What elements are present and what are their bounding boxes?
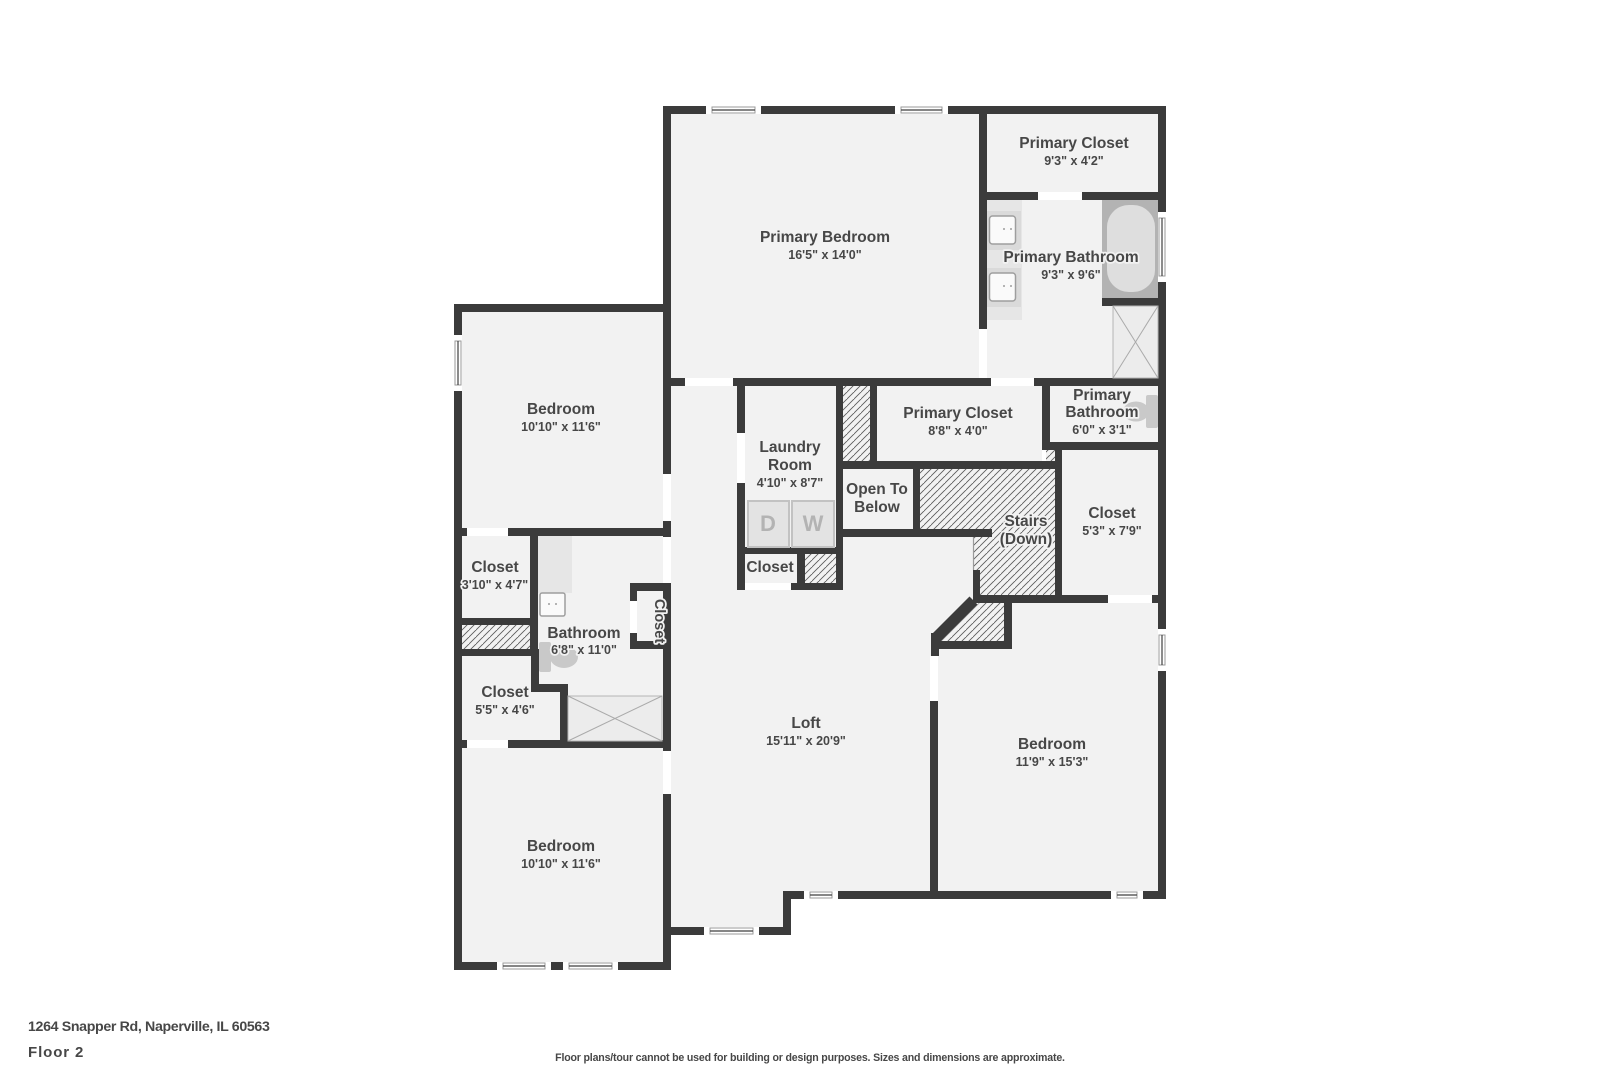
svg-text:Primary: Primary xyxy=(1073,387,1131,404)
svg-text:Bedroom: Bedroom xyxy=(1018,736,1086,753)
svg-text:5'5" x 4'6": 5'5" x 4'6" xyxy=(475,703,535,717)
svg-text:4'10" x 8'7": 4'10" x 8'7" xyxy=(757,476,824,490)
svg-text:Bathroom: Bathroom xyxy=(1065,404,1138,421)
svg-text:Loft: Loft xyxy=(791,715,820,732)
svg-text:16'5" x 14'0": 16'5" x 14'0" xyxy=(788,248,861,262)
svg-text:Laundry: Laundry xyxy=(759,439,821,456)
svg-text:Closet: Closet xyxy=(481,684,528,701)
svg-text:Bedroom: Bedroom xyxy=(527,401,595,418)
svg-text:W: W xyxy=(803,511,824,536)
svg-text:9'3" x 4'2": 9'3" x 4'2" xyxy=(1044,154,1104,168)
svg-text:Primary Bathroom: Primary Bathroom xyxy=(1003,249,1138,266)
svg-text:Stairs: Stairs xyxy=(1004,513,1047,530)
svg-text:Floor plans/tour cannot be use: Floor plans/tour cannot be used for buil… xyxy=(555,1052,1065,1064)
svg-text:11'9" x 15'3": 11'9" x 15'3" xyxy=(1016,755,1089,769)
svg-text:(Down): (Down) xyxy=(1000,531,1053,548)
svg-text:10'10" x 11'6": 10'10" x 11'6" xyxy=(521,420,601,434)
svg-text:15'11" x 20'9": 15'11" x 20'9" xyxy=(766,734,846,748)
svg-text:Bedroom: Bedroom xyxy=(527,838,595,855)
svg-text:Primary Bedroom: Primary Bedroom xyxy=(760,229,890,246)
svg-text:3'10" x 4'7": 3'10" x 4'7" xyxy=(462,578,529,592)
svg-text:Closet: Closet xyxy=(1088,505,1135,522)
svg-text:Below: Below xyxy=(854,499,901,516)
svg-text:Room: Room xyxy=(768,457,812,474)
svg-text:Open To: Open To xyxy=(846,481,908,498)
svg-text:Floor 2: Floor 2 xyxy=(28,1044,84,1061)
svg-text:1264 Snapper Rd, Naperville, I: 1264 Snapper Rd, Naperville, IL 60563 xyxy=(28,1019,270,1035)
svg-text:Primary Closet: Primary Closet xyxy=(1019,135,1128,152)
svg-text:10'10" x 11'6": 10'10" x 11'6" xyxy=(521,857,601,871)
svg-text:Bathroom: Bathroom xyxy=(547,625,620,642)
svg-text:5'3" x 7'9": 5'3" x 7'9" xyxy=(1082,524,1142,538)
svg-text:9'3" x 9'6": 9'3" x 9'6" xyxy=(1041,268,1101,282)
svg-text:Primary Closet: Primary Closet xyxy=(903,405,1012,422)
svg-text:6'0" x 3'1": 6'0" x 3'1" xyxy=(1072,423,1132,437)
svg-text:Closet: Closet xyxy=(471,559,518,576)
svg-text:6'8" x 11'0": 6'8" x 11'0" xyxy=(551,643,617,657)
svg-text:D: D xyxy=(760,511,776,536)
svg-text:8'8" x 4'0": 8'8" x 4'0" xyxy=(928,424,988,438)
svg-text:Closet: Closet xyxy=(746,559,793,576)
svg-text:Closet: Closet xyxy=(651,599,667,643)
